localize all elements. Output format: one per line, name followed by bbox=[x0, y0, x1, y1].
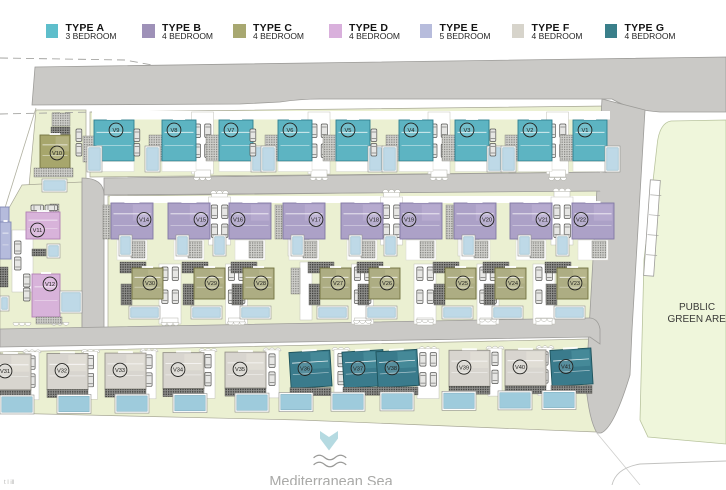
svg-text:V30: V30 bbox=[145, 281, 155, 287]
svg-text:V37: V37 bbox=[353, 366, 363, 372]
svg-text:V2: V2 bbox=[527, 128, 534, 134]
svg-text:V33: V33 bbox=[115, 368, 125, 374]
svg-text:V35: V35 bbox=[235, 367, 245, 373]
svg-text:V20: V20 bbox=[482, 218, 492, 224]
svg-text:V29: V29 bbox=[207, 281, 217, 287]
svg-text:V15: V15 bbox=[196, 218, 206, 224]
svg-text:PUBLIC: PUBLIC bbox=[679, 302, 715, 313]
svg-text:V8: V8 bbox=[171, 128, 178, 134]
svg-text:V36: V36 bbox=[300, 367, 310, 373]
svg-text:V3: V3 bbox=[464, 128, 471, 134]
svg-text:Mediterranean Sea: Mediterranean Sea bbox=[269, 474, 393, 485]
svg-text:t l ill: t l ill bbox=[4, 480, 14, 485]
svg-text:V39: V39 bbox=[459, 365, 469, 371]
svg-text:V1: V1 bbox=[582, 128, 589, 134]
svg-text:V28: V28 bbox=[256, 281, 266, 287]
svg-text:V26: V26 bbox=[382, 281, 392, 287]
svg-text:V22: V22 bbox=[576, 218, 586, 224]
svg-text:V27: V27 bbox=[333, 281, 343, 287]
svg-text:V18: V18 bbox=[369, 218, 379, 224]
svg-text:V24: V24 bbox=[508, 281, 518, 287]
svg-text:V31: V31 bbox=[0, 369, 10, 375]
svg-text:V9: V9 bbox=[113, 128, 120, 134]
svg-text:V10: V10 bbox=[52, 151, 62, 157]
svg-text:V12: V12 bbox=[45, 282, 55, 288]
svg-text:V38: V38 bbox=[387, 366, 397, 372]
svg-text:V5: V5 bbox=[345, 128, 352, 134]
svg-text:V16: V16 bbox=[233, 218, 243, 224]
svg-text:V14: V14 bbox=[139, 218, 149, 224]
svg-text:V40: V40 bbox=[515, 365, 525, 371]
svg-text:V41: V41 bbox=[561, 365, 571, 371]
svg-text:GREEN AREA: GREEN AREA bbox=[667, 314, 726, 325]
svg-text:V4: V4 bbox=[408, 128, 415, 134]
svg-text:V23: V23 bbox=[570, 281, 580, 287]
svg-text:V11: V11 bbox=[33, 228, 43, 234]
svg-text:V7: V7 bbox=[228, 128, 235, 134]
svg-text:V17: V17 bbox=[311, 218, 321, 224]
svg-text:V34: V34 bbox=[173, 368, 183, 374]
svg-text:V25: V25 bbox=[458, 281, 468, 287]
svg-text:V32: V32 bbox=[57, 369, 67, 375]
svg-text:V6: V6 bbox=[287, 128, 294, 134]
svg-text:V21: V21 bbox=[538, 218, 548, 224]
svg-text:V19: V19 bbox=[404, 218, 414, 224]
